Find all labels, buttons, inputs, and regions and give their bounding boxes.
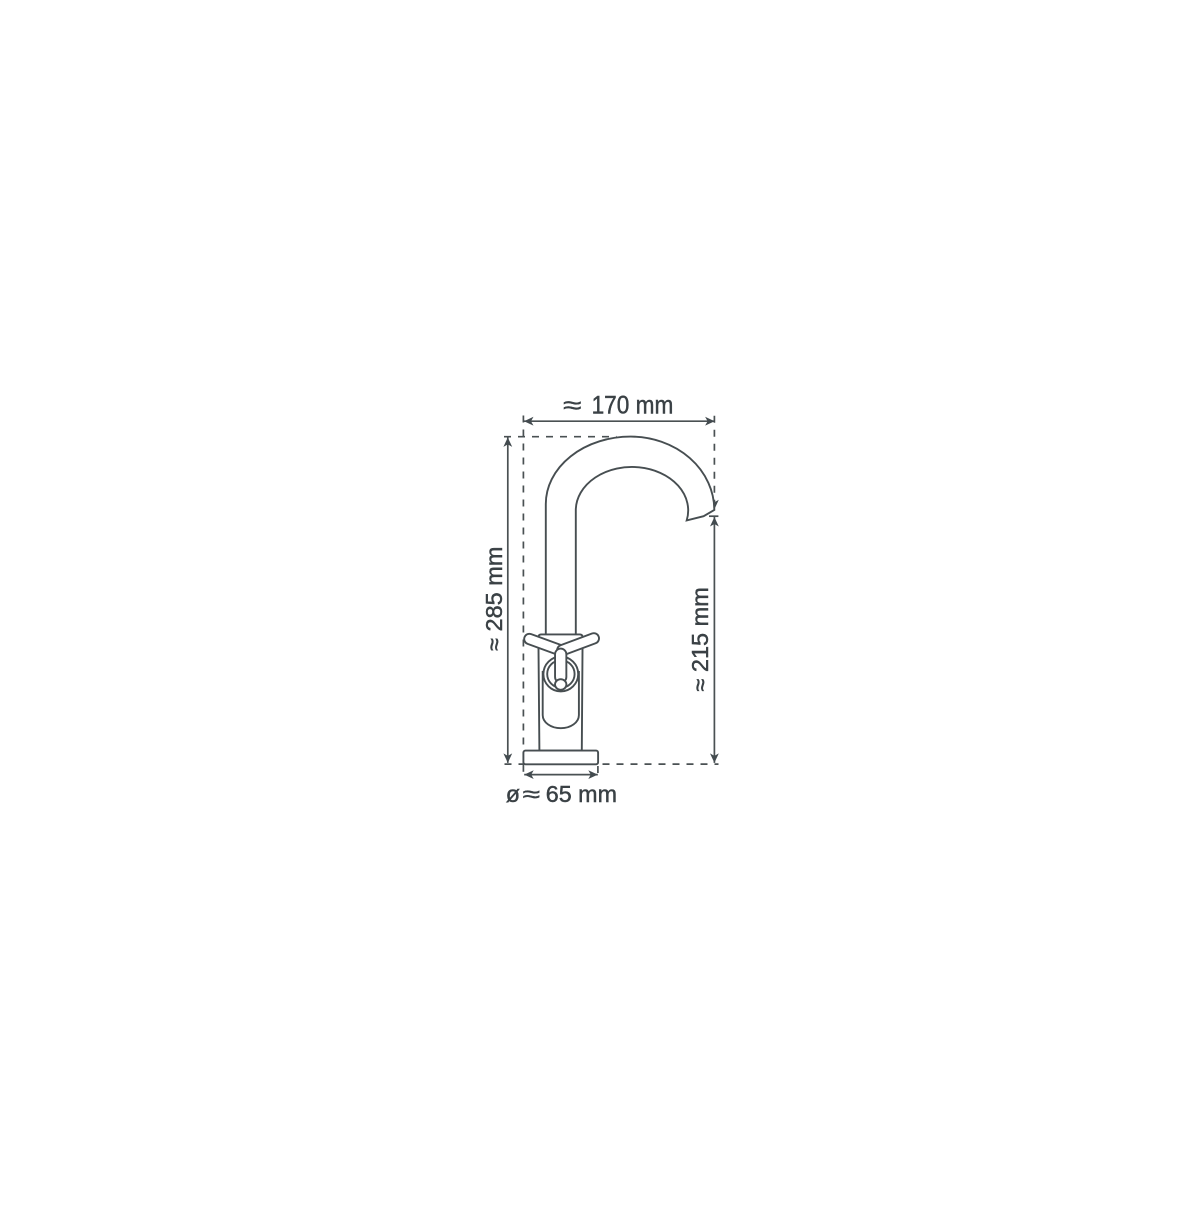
svg-text:≈ 215 mm: ≈ 215 mm bbox=[687, 587, 713, 691]
svg-text:170 mm: 170 mm bbox=[592, 392, 674, 419]
svg-text:≈ 285 mm: ≈ 285 mm bbox=[481, 547, 507, 651]
svg-text:65 mm: 65 mm bbox=[546, 781, 617, 807]
svg-text:≈: ≈ bbox=[563, 392, 581, 420]
svg-text:ø: ø bbox=[506, 781, 520, 807]
svg-text:≈: ≈ bbox=[523, 781, 540, 807]
